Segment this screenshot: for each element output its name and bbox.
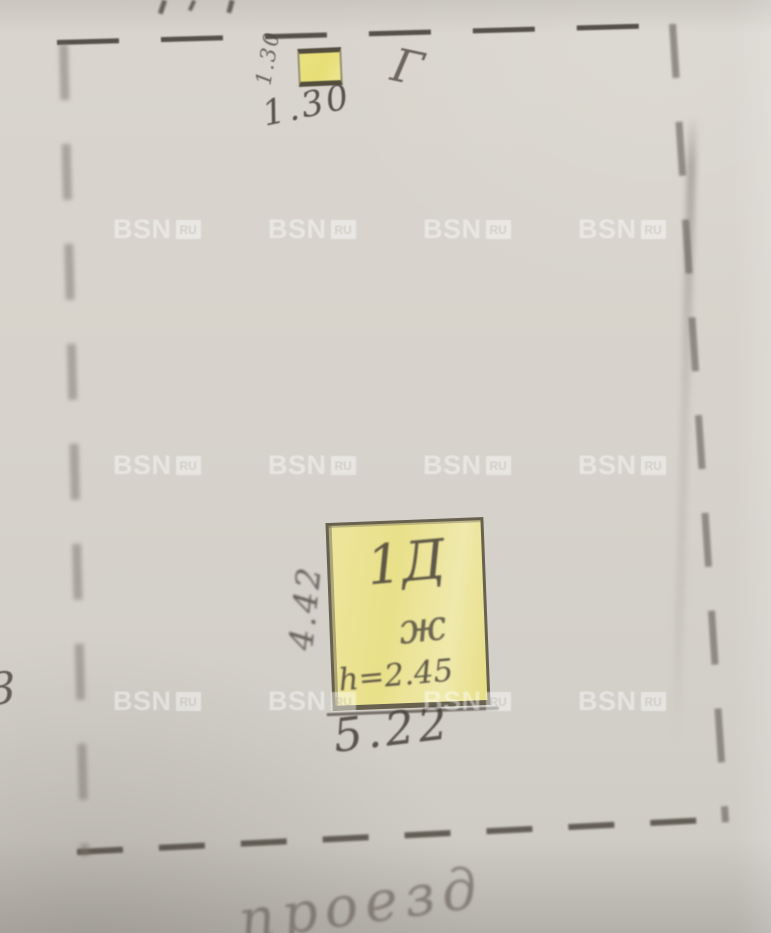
bsn-watermark-text: BSN [268, 216, 327, 243]
paper-shadow-top [0, 0, 771, 34]
bsn-watermark-text: BSN [423, 452, 482, 479]
paper-highlight-right [733, 0, 771, 933]
bsn-watermark-text: BSN [423, 216, 482, 243]
bsn-watermark: BSNRU [268, 452, 356, 479]
bsn-watermark-text: BSN [113, 452, 172, 479]
left-edge-mark: 3 [0, 663, 18, 716]
main-structure-depth-dimension: 4.42 [279, 541, 331, 674]
bsn-watermark-ru-badge: RU [641, 220, 666, 239]
bsn-watermark: BSNRU [423, 452, 511, 479]
bsn-watermark: BSNRU [113, 688, 201, 715]
bsn-watermark: BSNRU [578, 688, 666, 715]
bsn-watermark-text: BSN [268, 688, 327, 715]
boundary-dashed-left [59, 44, 89, 856]
bsn-watermark-ru-badge: RU [486, 220, 511, 239]
main-structure-height-note: h=2.45 [337, 652, 455, 698]
bsn-watermark-ru-badge: RU [641, 692, 666, 711]
bsn-watermark-ru-badge: RU [176, 220, 201, 239]
main-structure-sublabel: ж [358, 596, 487, 658]
bsn-watermark-ru-badge: RU [641, 456, 666, 475]
bsn-watermark-ru-badge: RU [486, 456, 511, 475]
plan-photo: 1.30 1.30 Г 1Д ж h=2.45 4.42 5.22 проезд… [0, 0, 771, 933]
watermark-layer: BSNRUBSNRUBSNRUBSNRUBSNRUBSNRUBSNRUBSNRU… [0, 0, 771, 933]
small-structure-letter-mark: Г [387, 37, 428, 96]
main-structure-label: 1Д [327, 524, 484, 601]
bsn-watermark-text: BSN [578, 216, 637, 243]
main-structure-rect: 1Д ж h=2.45 [325, 517, 490, 711]
bsn-watermark: BSNRU [268, 216, 356, 243]
bsn-watermark-ru-badge: RU [176, 456, 201, 475]
bsn-watermark-text: BSN [578, 688, 637, 715]
bsn-watermark-ru-badge: RU [331, 220, 356, 239]
bsn-watermark-text: BSN [578, 452, 637, 479]
bsn-watermark: BSNRU [423, 216, 511, 243]
bsn-watermark: BSNRU [578, 216, 666, 243]
bsn-watermark-ru-badge: RU [331, 456, 356, 475]
bsn-watermark-text: BSN [268, 452, 327, 479]
bsn-watermark-text: BSN [113, 216, 172, 243]
bsn-watermark: BSNRU [113, 452, 201, 479]
bsn-watermark-ru-badge: RU [176, 692, 201, 711]
bsn-watermark-text: BSN [113, 688, 172, 715]
bsn-watermark: BSNRU [578, 452, 666, 479]
bsn-watermark: BSNRU [113, 216, 201, 243]
